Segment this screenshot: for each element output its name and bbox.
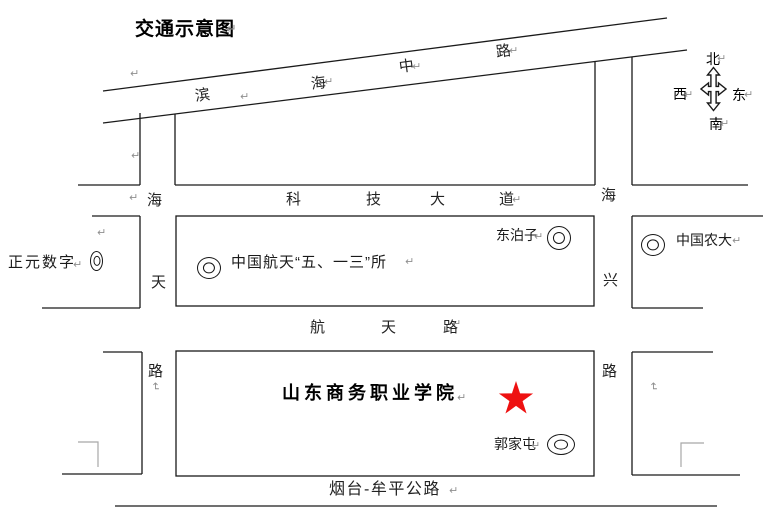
paragraph-mark: ↵: [131, 151, 140, 162]
keji-avenue-char-0: 科: [286, 192, 301, 207]
paragraph-mark: ↵: [457, 393, 466, 404]
haitian-road-char-2: 路: [148, 364, 163, 379]
location-marker-icon: [547, 226, 571, 250]
location-marker-icon: [641, 234, 665, 256]
haixing-road-char-2: 路: [602, 364, 617, 379]
yantai-muping-highway-label: 烟台-牟平公路: [329, 482, 441, 498]
paragraph-mark: ↵: [73, 260, 82, 271]
haitian-road-char-0: 海: [147, 193, 162, 208]
haixing-road-char-0: 海: [601, 188, 616, 203]
paragraph-mark: ↵: [732, 236, 741, 247]
paragraph-mark: ↵: [531, 441, 540, 452]
haitian-road-char-1: 天: [151, 275, 166, 290]
paragraph-mark: ↵: [97, 228, 106, 239]
paragraph-mark: ↵: [449, 486, 458, 497]
map-road-lines: [0, 0, 779, 517]
hangtian-road-char-1: 天: [381, 320, 396, 335]
keji-avenue-char-1: 技: [366, 192, 381, 207]
paragraph-mark: ↵: [149, 382, 160, 391]
paragraph-mark: ↵: [412, 62, 421, 73]
location-marker-icon: [547, 434, 575, 455]
place-label-china-agri-univ: 中国农大: [676, 233, 732, 247]
paragraph-mark: ↵: [324, 77, 333, 88]
paragraph-mark: ↵: [647, 382, 658, 391]
paragraph-mark: ↵: [240, 92, 249, 103]
map-title: 交通示意图: [135, 20, 235, 39]
place-label-casc-513: 中国航天“五、一三”所: [231, 255, 387, 270]
paragraph-mark: ↵: [452, 319, 461, 330]
traffic-map: 交通示意图 滨 海 中 路 科 技 大 道 海 天 路 海 兴 路 航 天 路 …: [0, 0, 779, 517]
hangtian-road-char-0: 航: [310, 320, 325, 335]
paragraph-mark: ↵: [744, 90, 753, 101]
paragraph-mark: ↵: [509, 46, 518, 57]
corner-brackets: [78, 442, 704, 467]
binhai-road-char-0: 滨: [194, 87, 211, 104]
paragraph-mark: ↵: [534, 232, 543, 243]
college-star-icon: [498, 381, 534, 415]
place-label-dongbozi: 东泊子: [496, 228, 538, 242]
compass-arrows-icon: [700, 66, 727, 112]
paragraph-mark: ↵: [684, 90, 693, 101]
paragraph-mark: ↵: [226, 22, 237, 35]
paragraph-mark: ↵: [129, 193, 138, 204]
paragraph-mark: ↵: [405, 257, 414, 268]
location-marker-icon: [197, 257, 221, 279]
star-shape: [499, 381, 533, 414]
location-marker-icon: [90, 251, 103, 271]
paragraph-mark: ↵: [717, 54, 726, 65]
paragraph-mark: ↵: [130, 69, 139, 80]
paragraph-mark: ↵: [512, 195, 521, 206]
haixing-road-char-1: 兴: [603, 273, 618, 288]
place-label-zhengyuan: 正元数字: [8, 255, 76, 270]
keji-avenue-char-2: 大: [430, 192, 445, 207]
place-label-college: 山东商务职业学院: [282, 384, 458, 402]
paragraph-mark: ↵: [720, 119, 729, 130]
place-label-guojiatun: 郭家屯: [494, 437, 536, 451]
